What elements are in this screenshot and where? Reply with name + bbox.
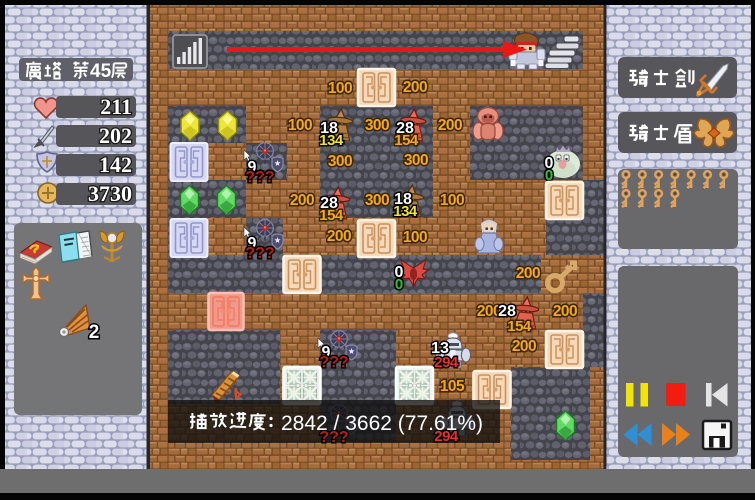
- svg-text:100: 100: [288, 117, 312, 134]
- svg-text:???: ???: [245, 169, 274, 186]
- svg-text:200: 200: [553, 303, 577, 320]
- svg-text:300: 300: [365, 117, 389, 134]
- svg-text:142: 142: [99, 152, 132, 177]
- svg-text:100: 100: [328, 80, 352, 97]
- svg-text:100: 100: [440, 192, 464, 209]
- svg-text:200: 200: [290, 192, 314, 209]
- svg-text:2842 / 3662 (77.61%): 2842 / 3662 (77.61%): [281, 412, 483, 435]
- svg-text:200: 200: [403, 79, 427, 96]
- svg-text:45: 45: [90, 61, 112, 82]
- svg-text:300: 300: [328, 153, 352, 170]
- svg-text:202: 202: [99, 123, 132, 148]
- svg-text:154: 154: [507, 318, 532, 335]
- svg-text:200: 200: [438, 117, 462, 134]
- svg-text:211: 211: [100, 94, 132, 119]
- svg-text:294: 294: [434, 354, 459, 371]
- svg-text:???: ???: [245, 245, 274, 262]
- svg-text:3730: 3730: [88, 181, 132, 206]
- svg-text:200: 200: [327, 228, 351, 245]
- svg-text:200: 200: [516, 265, 540, 282]
- svg-text:100: 100: [403, 229, 427, 246]
- svg-text:154: 154: [394, 132, 419, 149]
- svg-text:0: 0: [395, 276, 403, 293]
- svg-text:105: 105: [440, 378, 465, 395]
- svg-text:134: 134: [319, 132, 344, 149]
- svg-text:???: ???: [319, 354, 348, 371]
- svg-text:300: 300: [404, 152, 428, 169]
- svg-text:154: 154: [319, 207, 344, 224]
- svg-text:134: 134: [393, 203, 418, 220]
- svg-text:300: 300: [365, 192, 389, 209]
- svg-text:200: 200: [512, 338, 536, 355]
- svg-text:2: 2: [89, 322, 100, 343]
